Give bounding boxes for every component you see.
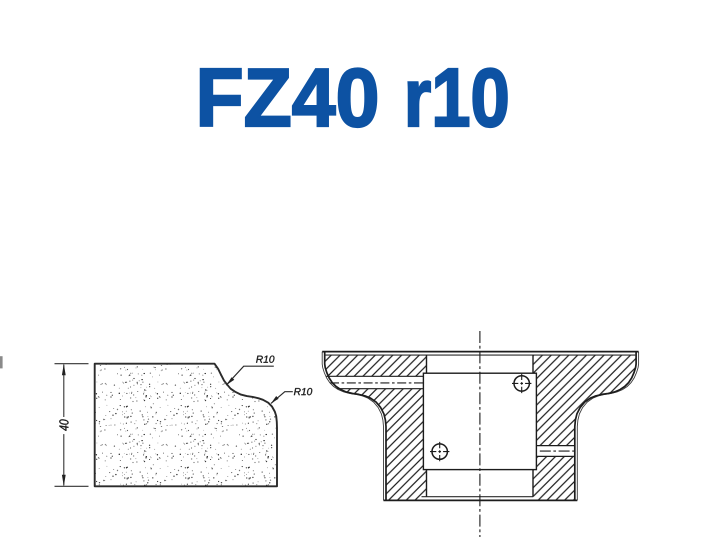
svg-text:FZ40: FZ40 (196, 51, 380, 144)
svg-text:r10: r10 (404, 51, 510, 144)
